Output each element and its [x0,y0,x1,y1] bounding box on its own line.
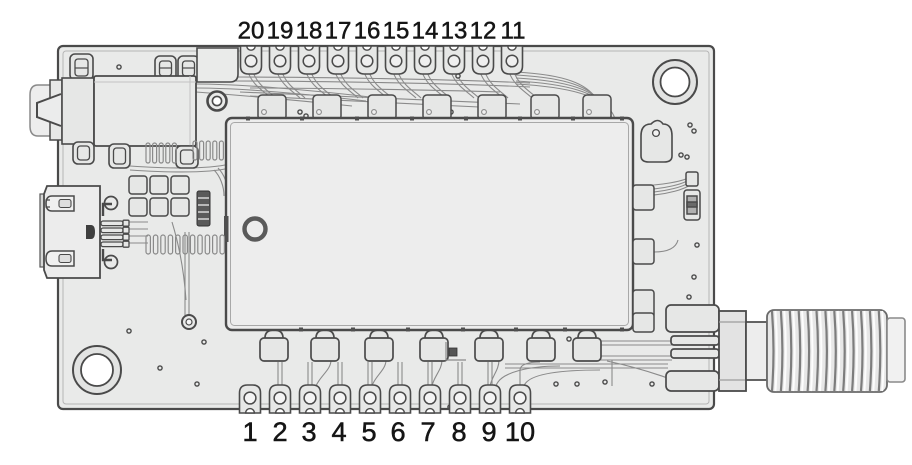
svg-text:1: 1 [242,416,257,447]
svg-text:20: 20 [238,18,265,45]
svg-text:17: 17 [325,18,352,45]
svg-text:6: 6 [390,416,405,447]
svg-text:7: 7 [420,416,435,447]
svg-text:13: 13 [441,18,468,45]
svg-text:15: 15 [383,18,410,45]
svg-text:18: 18 [296,18,323,45]
svg-text:16: 16 [354,18,381,45]
svg-text:5: 5 [361,416,376,447]
svg-text:4: 4 [331,416,346,447]
svg-text:3: 3 [301,416,316,447]
svg-text:2: 2 [272,416,287,447]
svg-text:9: 9 [481,416,496,447]
svg-text:12: 12 [470,18,497,45]
svg-text:10: 10 [505,416,535,447]
svg-text:11: 11 [501,18,526,45]
svg-text:8: 8 [451,416,466,447]
svg-text:19: 19 [267,18,294,45]
svg-text:14: 14 [412,18,439,45]
